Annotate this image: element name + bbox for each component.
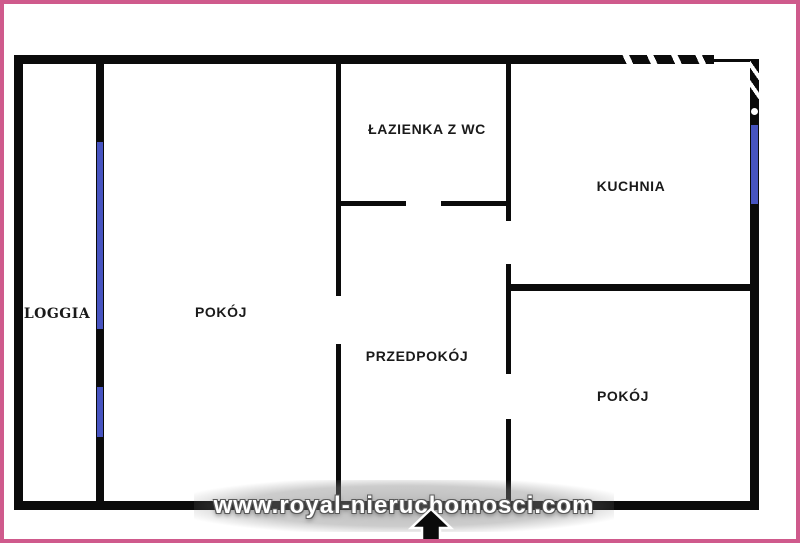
- room-label-hallway: PRZEDPOKÓJ: [366, 348, 468, 364]
- kitchen-balcony-window-hatched-wall: [609, 55, 714, 64]
- outer-wall-top-thin-segment: [714, 59, 755, 62]
- wall-bathroom-bottom-right: [441, 201, 511, 206]
- outer-wall-left: [14, 55, 23, 510]
- loggia-window-upper: [97, 142, 103, 329]
- loggia-window-lower: [97, 387, 103, 437]
- right-wall-hatched-segment: [750, 61, 759, 99]
- wall-bathroom-left-upper: [336, 64, 341, 296]
- kitchen-window: [751, 125, 758, 204]
- room-label-room-left: POKÓJ: [195, 304, 247, 320]
- floor-plan: ŁAZIENKA Z WC KUCHNIA LOGGIA POKÓJ PRZED…: [0, 0, 800, 543]
- entrance-arrow-icon: [407, 507, 455, 543]
- wall-room-hall-divider-lower: [336, 344, 341, 501]
- room-label-kitchen: KUCHNIA: [597, 178, 666, 194]
- wall-bathroom-right-upper: [506, 64, 511, 221]
- door-knob-dot: [751, 108, 758, 115]
- wall-bathroom-bottom-left: [336, 201, 406, 206]
- wall-kitchen-bottom: [511, 284, 750, 291]
- watermark-url-text: www.royal-nieruchomosci.com: [214, 492, 595, 520]
- room-label-loggia: LOGGIA: [24, 306, 90, 322]
- room-label-room-right: POKÓJ: [597, 388, 649, 404]
- room-label-bathroom: ŁAZIENKA Z WC: [368, 121, 486, 137]
- wall-hall-kitchen-divider-middle: [506, 264, 511, 374]
- watermark-band: www.royal-nieruchomosci.com: [194, 480, 614, 532]
